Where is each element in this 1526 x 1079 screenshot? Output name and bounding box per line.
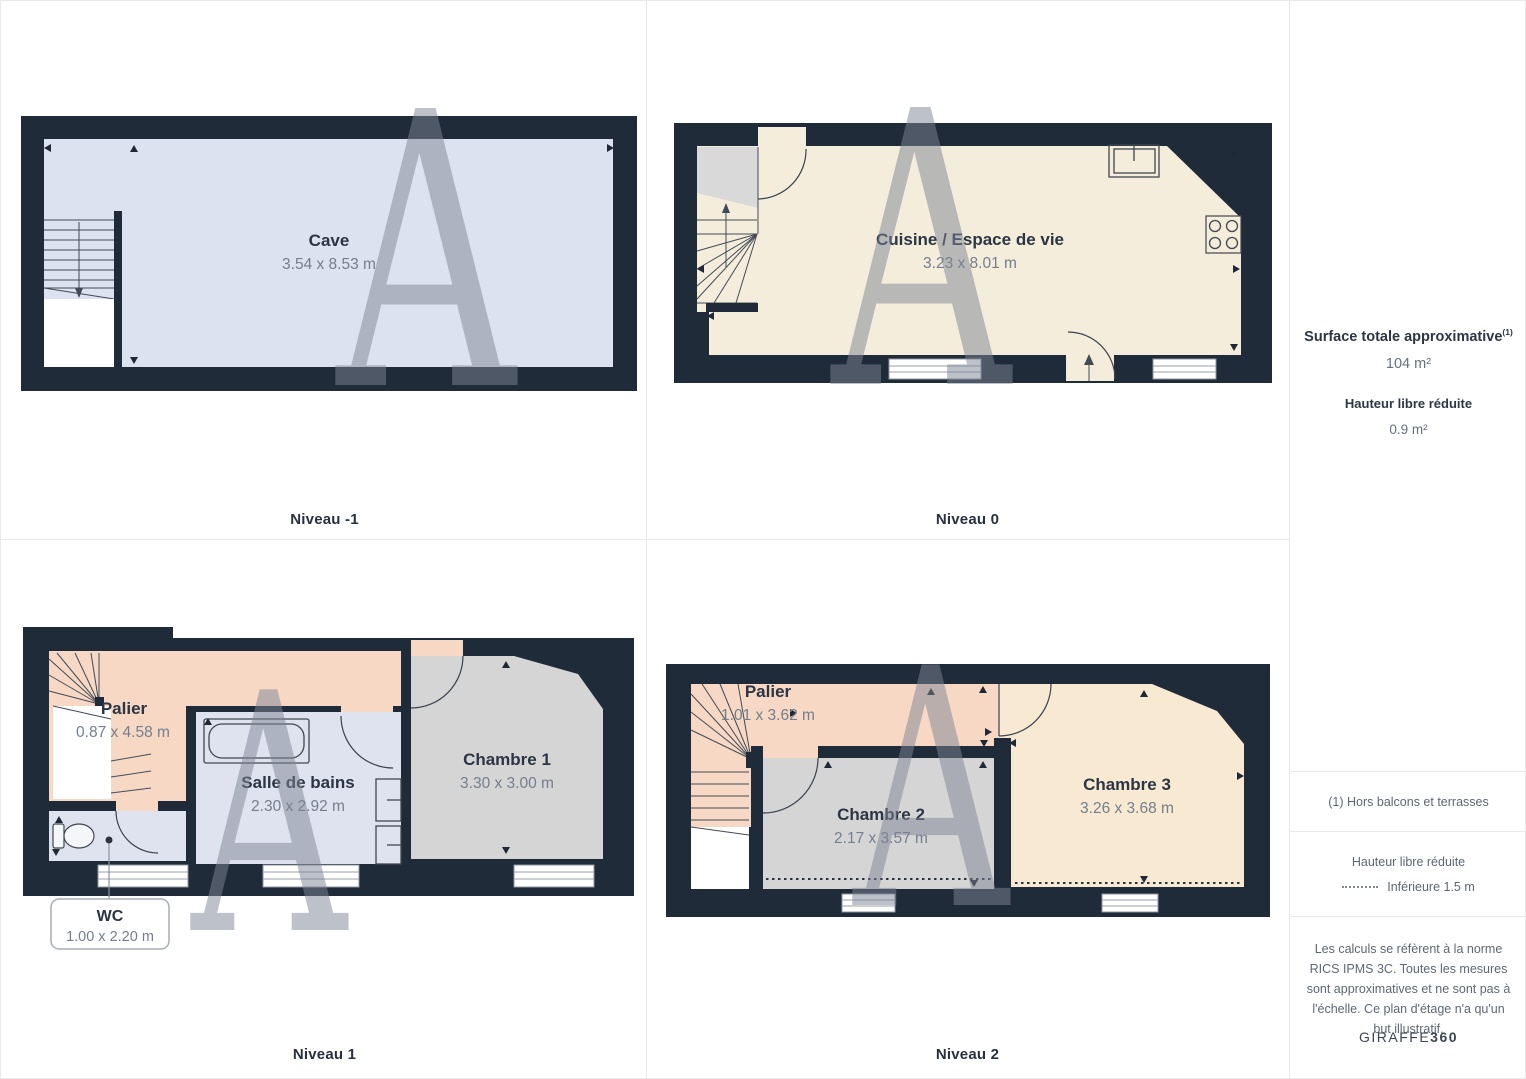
toilet-icon: [53, 824, 94, 848]
door-opening: [758, 127, 806, 146]
door-opening: [411, 640, 463, 656]
door-opening: [341, 706, 393, 712]
wall: [401, 651, 411, 864]
room-label-palier-1: Palier: [101, 699, 148, 718]
window: [514, 865, 594, 887]
footnote: (1) Hors balcons et terrasses: [1290, 772, 1526, 831]
room-dims-palier-2: 1.01 x 3.62 m: [721, 707, 815, 724]
floorplan-niveau-1: WC 1.00 x 2.20 m Palier 0.87 x 4.58 m Sa…: [23, 627, 634, 957]
room-label-cave: Cave: [309, 231, 350, 250]
stove-icon: [1206, 216, 1241, 253]
room-label-chambre-2: Chambre 2: [837, 805, 925, 824]
room-label-chambre-1: Chambre 1: [463, 750, 551, 769]
brand-bold: 360: [1430, 1029, 1458, 1045]
wall: [186, 706, 196, 864]
cave-floor: [44, 139, 613, 367]
floorplan-niveau-0: Cuisine / Espace de vie 3.23 x 8.01 m: [674, 123, 1272, 385]
surface-total-value: 104 m²: [1290, 356, 1526, 372]
door-opening: [116, 801, 158, 811]
room-label-palier-2: Palier: [745, 682, 792, 701]
level-label-niveau-0: Niveau 0: [646, 511, 1289, 528]
grid-divider-horizontal: [1, 539, 1289, 540]
level-label-niveau-1: Niveau 1: [3, 1046, 646, 1063]
room-label-cuisine: Cuisine / Espace de vie: [876, 230, 1064, 249]
disclaimer-text: Les calculs se réfèrent à la norme RICS …: [1304, 939, 1513, 1039]
legend-row: Inférieure 1.5 m: [1342, 880, 1475, 894]
surface-total-title-text: Surface totale approximative: [1304, 329, 1502, 345]
surface-total-title: Surface totale approximative(1): [1290, 327, 1526, 345]
sidebar-section-divider: [1290, 916, 1526, 917]
room-dims-salle-de-bains: 2.30 x 2.92 m: [251, 798, 345, 815]
surface-total-superscript: (1): [1502, 327, 1512, 337]
room-dims-chambre-3: 3.26 x 3.68 m: [1080, 800, 1174, 817]
room-dims-chambre-2: 2.17 x 3.57 m: [834, 830, 928, 847]
room-dims-palier-1: 0.87 x 4.58 m: [76, 724, 170, 741]
surface-summary: Surface totale approximative(1) 104 m² H…: [1290, 327, 1526, 437]
reduced-height-title: Hauteur libre réduite: [1290, 396, 1526, 411]
window: [842, 894, 895, 912]
legend-title: Hauteur libre réduite: [1352, 855, 1465, 869]
wall: [751, 758, 763, 889]
window: [263, 865, 359, 887]
giraffe360-logo: GIRAFFE360: [1290, 1029, 1526, 1045]
reduced-height-legend: Hauteur libre réduite Inférieure 1.5 m: [1290, 832, 1526, 916]
floorplan-niveau-m1: Cave 3.54 x 8.53 m: [21, 116, 637, 392]
floorplan-niveau-2: Palier 1.01 x 3.62 m Chambre 2 2.17 x 3.…: [666, 664, 1270, 918]
room-dims-cave: 3.54 x 8.53 m: [282, 256, 376, 273]
floorplan-page: Cave 3.54 x 8.53 m: [0, 0, 1526, 1079]
wall: [994, 738, 1011, 889]
window: [98, 865, 188, 887]
room-dims-cuisine: 3.23 x 8.01 m: [923, 255, 1017, 272]
legend-value: Inférieure 1.5 m: [1387, 880, 1475, 894]
room-label-wc: WC: [97, 908, 124, 925]
level-label-niveau-2: Niveau 2: [646, 1046, 1289, 1063]
info-sidebar: Surface totale approximative(1) 104 m² H…: [1290, 1, 1526, 1079]
door-opening: [763, 746, 818, 758]
room-label-chambre-3: Chambre 3: [1083, 775, 1171, 794]
level-label-niveau-m1: Niveau -1: [3, 511, 646, 528]
reduced-height-value: 0.9 m²: [1290, 422, 1526, 437]
room-dims-chambre-1: 3.30 x 3.00 m: [460, 775, 554, 792]
brand-regular: GIRAFFE: [1359, 1029, 1430, 1045]
room-dims-wc: 1.00 x 2.20 m: [66, 929, 154, 945]
window: [1102, 894, 1158, 912]
room-label-salle-de-bains: Salle de bains: [241, 773, 354, 792]
grid-divider-vertical: [646, 1, 647, 1079]
window: [1153, 359, 1216, 379]
dotted-line-symbol: [1342, 884, 1378, 888]
window: [889, 359, 981, 379]
